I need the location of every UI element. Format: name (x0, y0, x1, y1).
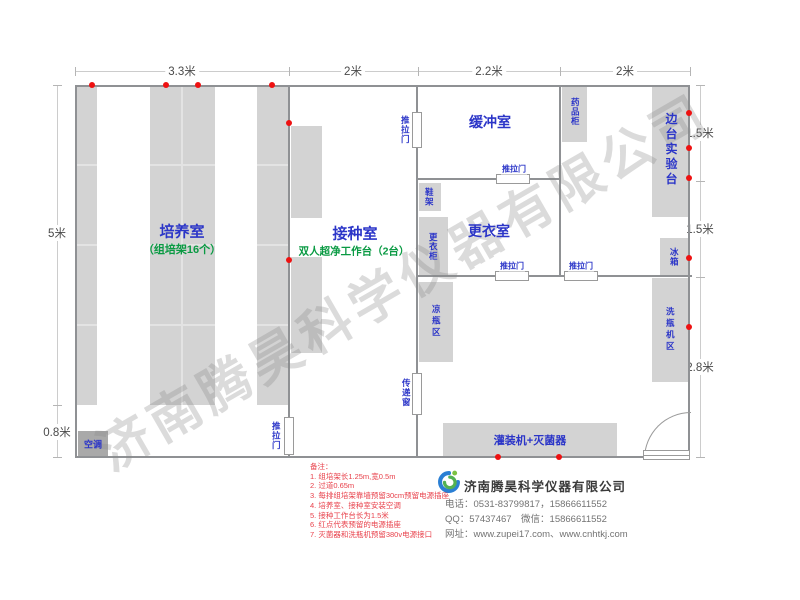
washer-area-label: 洗瓶机区 (666, 307, 675, 353)
dim-tick (53, 405, 62, 406)
wall-cultivation-inoculation (288, 85, 290, 458)
sliding-door-label-v1: 推拉门 (401, 116, 410, 145)
note-item: 6. 红点代表预留的电源插座 (310, 520, 449, 530)
dim-top-1: 3.3米 (165, 63, 199, 79)
dim-tick (696, 181, 705, 182)
dim-top-3: 2.2米 (472, 63, 506, 79)
entry-door-leaf-line (644, 455, 689, 456)
power-socket-dot (286, 257, 292, 263)
note-item: 3. 每排组培架靠墙预留30cm预留电源插座 (310, 491, 449, 501)
power-socket-dot (686, 255, 692, 261)
power-socket-dot (686, 110, 692, 116)
sliding-door-cultivation-inoculation (284, 417, 294, 455)
company-qq-wechat: QQ：57437467 微信：15866611552 (445, 511, 607, 525)
dim-tick (690, 67, 691, 76)
room-sublabel-inoculation: 双人超净工作台（2台） (299, 244, 410, 259)
company-website: 网址：www.zupei17.com、www.cnhtkj.com (445, 526, 628, 540)
power-socket-dot (195, 82, 201, 88)
dim-tick (53, 457, 62, 458)
sliding-door-label-v2: 推拉门 (272, 422, 281, 451)
sliding-door-label-h3: 推拉门 (568, 261, 594, 272)
side-bench-label: 边台实验台 (665, 113, 677, 188)
power-socket-dot (269, 82, 275, 88)
dim-tick (418, 67, 419, 76)
power-socket-dot (89, 82, 95, 88)
notes-block: 备注： 1. 组培架长1.25m,宽0.5m 2. 过道0.65m 3. 每排组… (310, 462, 449, 540)
power-socket-dot (495, 454, 501, 460)
fridge-label: 冰箱 (670, 248, 679, 267)
room-label-cultivation: 培养室 (159, 221, 204, 242)
power-socket-dot (686, 324, 692, 330)
dim-tick (53, 85, 62, 86)
room-label-changing: 更衣室 (468, 221, 510, 241)
transfer-window-label: 传递窗 (402, 379, 411, 408)
sliding-door-inoculation-buffer (412, 112, 422, 148)
medicine-cabinet-label: 药品柜 (571, 98, 580, 127)
dim-tick (289, 67, 290, 76)
dim-top-4: 2米 (613, 63, 637, 79)
room-sublabel-cultivation: （组培架16个） (143, 241, 221, 257)
dim-top-2: 2米 (341, 63, 365, 79)
note-item: 1. 组培架长1.25m,宽0.5m (310, 472, 449, 482)
room-label-buffer: 缓冲室 (469, 112, 511, 132)
dim-tick (560, 67, 561, 76)
notes-title: 备注： (310, 462, 449, 472)
filling-machine-label: 灌装机+灭菌器 (494, 432, 566, 448)
dim-tick (75, 67, 76, 76)
ac-label: 空调 (84, 438, 102, 451)
transfer-window-opening (412, 373, 422, 415)
note-item: 2. 过道0.65m (310, 481, 449, 491)
sliding-door-changing-south (495, 271, 529, 281)
company-name: 济南腾昊科学仪器有限公司 (464, 476, 626, 495)
power-socket-dot (286, 120, 292, 126)
power-socket-dot (686, 175, 692, 181)
room-label-inoculation: 接种室 (332, 223, 377, 244)
note-item: 5. 接种工作台长为1.5米 (310, 511, 449, 521)
dim-tick (696, 85, 705, 86)
company-phone: 电话：0531-83799817，15866611552 (445, 496, 607, 510)
sliding-door-rightroom-south (564, 271, 598, 281)
power-socket-dot (556, 454, 562, 460)
note-item: 4. 培养室、接种室安装空调 (310, 501, 449, 511)
shoe-rack-label: 鞋架 (425, 188, 434, 207)
dim-left-2: 0.8米 (40, 424, 74, 440)
power-socket-dot (686, 145, 692, 151)
note-item: 7. 灭菌器和洗瓶机预留380v电源接口 (310, 530, 449, 540)
dim-tick (696, 277, 705, 278)
entry-door-leaf (643, 450, 690, 460)
sliding-door-label-h2: 推拉门 (499, 261, 525, 272)
wardrobe-label: 更衣柜 (429, 233, 438, 262)
sliding-door-label-h1: 推拉门 (501, 164, 527, 175)
dim-left-1: 5米 (45, 225, 69, 241)
power-socket-dot (163, 82, 169, 88)
dim-tick (696, 457, 705, 458)
dim-line-left (57, 85, 58, 458)
cooling-area-label: 凉瓶区 (432, 305, 441, 340)
